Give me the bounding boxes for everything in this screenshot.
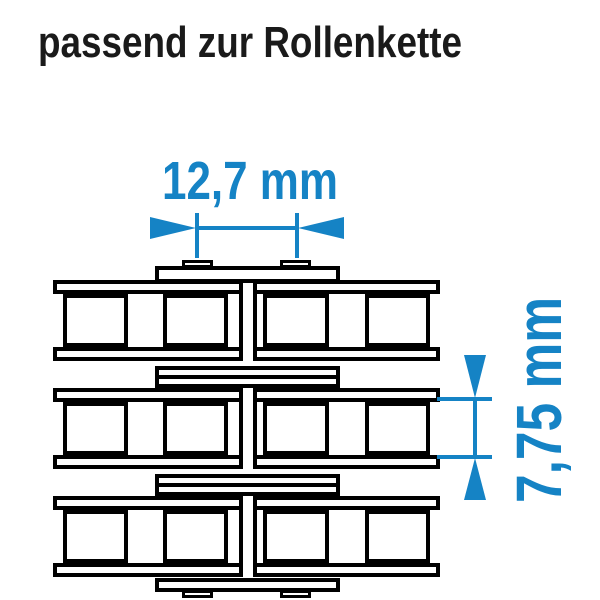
pitch-dimension-label: 12,7 mm: [162, 151, 338, 211]
roller: [65, 296, 126, 345]
chain-drawing-canvas: passend zur Rollenkette: [0, 0, 600, 600]
roller-dimension-label: 7,75 mm: [503, 297, 575, 503]
bottom-outer-plate-group: [157, 580, 338, 597]
roller: [367, 512, 428, 561]
roller: [265, 404, 327, 453]
link-plate-bar: [55, 282, 241, 292]
inner-plate-junction: [157, 476, 338, 494]
link-plate-bar: [255, 565, 438, 575]
link-plate-bar: [55, 457, 241, 467]
pin-head: [282, 592, 310, 597]
link-plate-bar: [55, 565, 241, 575]
top-outer-plate-group: [157, 262, 338, 282]
pin-head: [184, 262, 212, 267]
dimension-arrow-left-icon: [298, 217, 344, 239]
roller: [367, 404, 428, 453]
diagram-title: passend zur Rollenkette: [38, 18, 462, 67]
chain-diagram: passend zur Rollenkette: [0, 0, 600, 600]
roller-chain: [55, 262, 438, 597]
chain-row: [55, 280, 438, 361]
dimension-arrow-down-icon: [464, 355, 486, 398]
dimension-arrow-up-icon: [464, 458, 486, 500]
inner-plate-junction: [157, 368, 338, 386]
roller: [65, 512, 126, 561]
link-plate-bar: [255, 498, 438, 508]
link-plate-bar: [55, 390, 241, 400]
link-plate-bar: [255, 282, 438, 292]
dimension-arrow-right-icon: [150, 217, 196, 239]
pin-head: [282, 262, 310, 267]
link-plate-bar: [255, 349, 438, 359]
roller: [165, 296, 226, 345]
roller: [165, 404, 226, 453]
link-plate-bar: [55, 498, 241, 508]
chain-row: [55, 388, 438, 469]
link-plate-bar: [255, 457, 438, 467]
roller: [367, 296, 428, 345]
link-plate-bar: [255, 390, 438, 400]
link-plate-bar: [55, 349, 241, 359]
outer-link-plate: [157, 268, 338, 281]
roller-dimension: 7,75 mm: [437, 297, 575, 503]
outer-link-plate: [157, 580, 338, 590]
pin-head: [184, 592, 212, 597]
roller: [265, 512, 327, 561]
roller: [265, 296, 327, 345]
chain-row: [55, 496, 438, 577]
roller: [165, 512, 226, 561]
roller: [65, 404, 126, 453]
pitch-dimension: 12,7 mm: [150, 151, 344, 258]
